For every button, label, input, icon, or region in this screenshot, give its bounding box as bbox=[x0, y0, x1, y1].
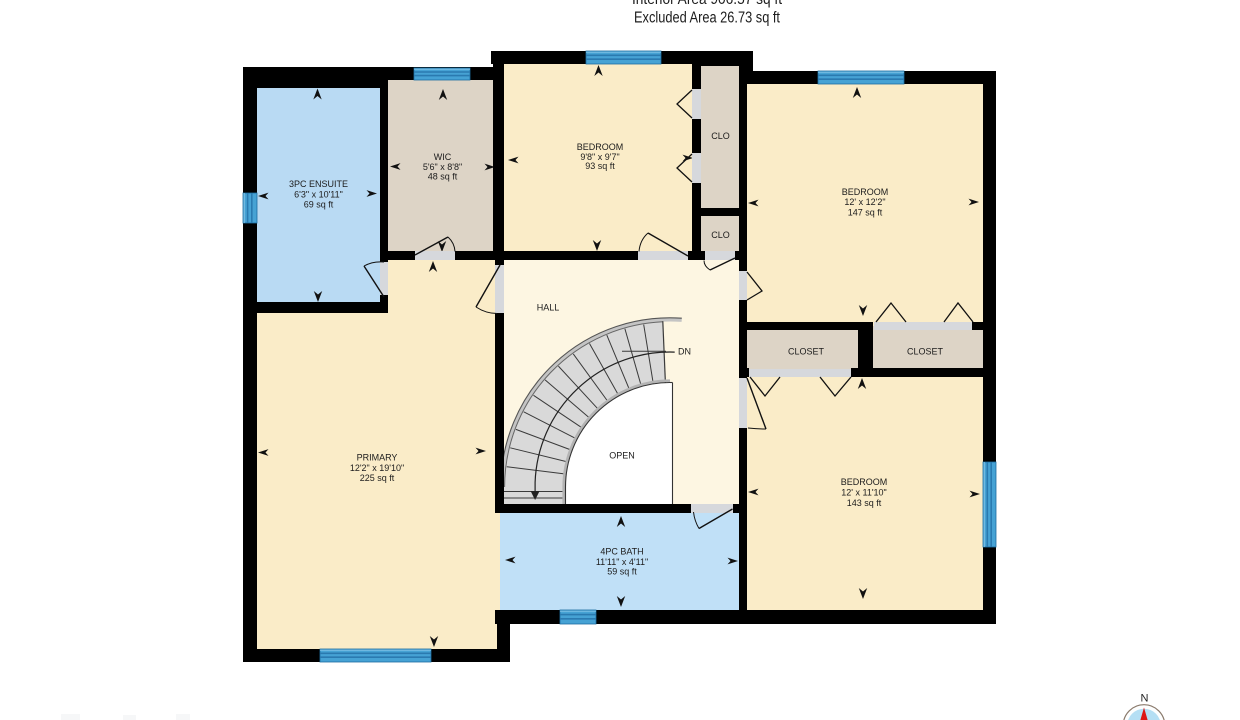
svg-text:3PC ENSUITE: 3PC ENSUITE bbox=[289, 179, 348, 189]
svg-text:6'3" x 10'11": 6'3" x 10'11" bbox=[294, 189, 343, 199]
svg-text:143 sq ft: 143 sq ft bbox=[847, 498, 882, 508]
svg-text:4PC BATH: 4PC BATH bbox=[600, 547, 643, 557]
svg-text:CLOSET: CLOSET bbox=[788, 347, 825, 357]
svg-text:CLOSET: CLOSET bbox=[907, 347, 944, 357]
svg-text:OPEN: OPEN bbox=[609, 451, 635, 461]
svg-text:BEDROOM: BEDROOM bbox=[841, 477, 888, 487]
svg-text:12' x 12'2": 12' x 12'2" bbox=[844, 197, 885, 207]
svg-text:5'6" x 8'8": 5'6" x 8'8" bbox=[423, 162, 462, 172]
svg-text:BEDROOM: BEDROOM bbox=[842, 187, 889, 197]
svg-text:93 sq ft: 93 sq ft bbox=[585, 161, 615, 171]
svg-text:N: N bbox=[1141, 693, 1149, 705]
svg-text:69 sq ft: 69 sq ft bbox=[304, 200, 334, 210]
svg-text:48 sq ft: 48 sq ft bbox=[428, 172, 458, 182]
svg-text:PRIMARY: PRIMARY bbox=[357, 453, 398, 463]
svg-text:CLO: CLO bbox=[711, 131, 730, 141]
svg-text:12' x 11'10": 12' x 11'10" bbox=[841, 488, 887, 498]
svg-text:DN: DN bbox=[678, 347, 691, 357]
svg-text:59 sq ft: 59 sq ft bbox=[607, 567, 637, 577]
svg-text:CLO: CLO bbox=[711, 230, 730, 240]
svg-text:BEDROOM: BEDROOM bbox=[577, 142, 624, 152]
svg-text:147 sq ft: 147 sq ft bbox=[848, 208, 883, 218]
svg-text:225 sq ft: 225 sq ft bbox=[360, 473, 395, 483]
svg-text:WIC: WIC bbox=[434, 152, 452, 162]
svg-text:11'11" x 4'11": 11'11" x 4'11" bbox=[596, 557, 648, 567]
svg-text:Interior Area 906.57 sq ft: Interior Area 906.57 sq ft bbox=[632, 0, 783, 8]
svg-text:HALL: HALL bbox=[537, 303, 560, 313]
svg-text:Excluded Area 26.73 sq ft: Excluded Area 26.73 sq ft bbox=[634, 9, 781, 26]
svg-text:12'2" x 19'10": 12'2" x 19'10" bbox=[350, 463, 404, 473]
